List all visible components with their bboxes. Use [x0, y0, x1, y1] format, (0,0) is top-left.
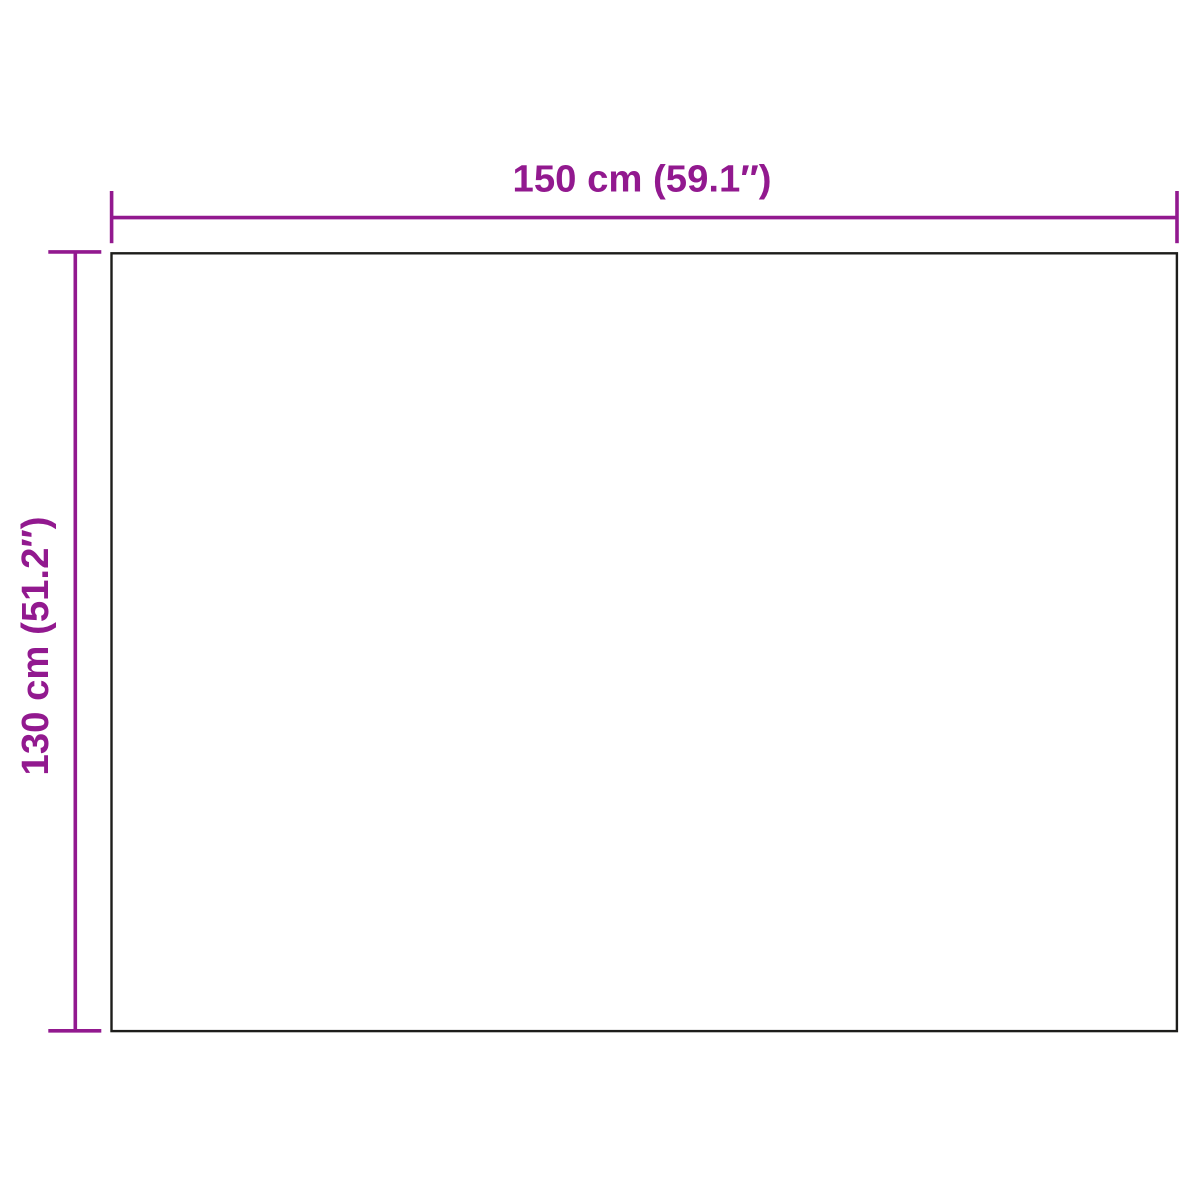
svg-text:130 cm (51.2″): 130 cm (51.2″)	[14, 517, 57, 776]
svg-text:150 cm (59.1″): 150 cm (59.1″)	[513, 158, 772, 201]
